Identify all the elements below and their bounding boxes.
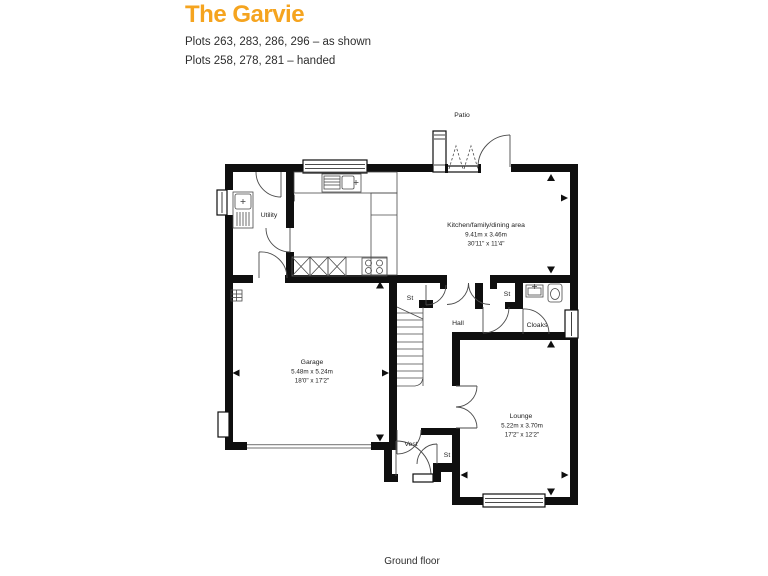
lounge-label: Lounge bbox=[510, 413, 533, 420]
wall-pier bbox=[433, 131, 446, 172]
base-units bbox=[292, 257, 387, 276]
utility-label: Utility bbox=[261, 212, 278, 219]
garage-vent bbox=[218, 412, 229, 437]
kitchen-label: Kitchen/family/dining area bbox=[447, 222, 525, 229]
lounge-dims-metric: 5.22m x 3.70m bbox=[501, 423, 543, 430]
store-top-left-label: St bbox=[407, 295, 414, 302]
kitchen-fittings bbox=[292, 172, 397, 276]
garage-dims-imperial: 18'0" x 17'2" bbox=[295, 378, 330, 385]
ground-floor-label: Ground floor bbox=[312, 556, 512, 567]
utility-sink-icon bbox=[233, 192, 253, 228]
floorplan-page: The Garvie Plots 263, 283, 286, 296 – as… bbox=[0, 0, 768, 576]
kitchen-counter bbox=[294, 172, 397, 193]
patio-doors bbox=[433, 131, 510, 173]
garage-door bbox=[247, 445, 371, 448]
hob-icon bbox=[362, 258, 387, 275]
lounge-dims-imperial: 17'2" x 12'2" bbox=[505, 432, 540, 439]
vestibule-label: Vest bbox=[404, 441, 417, 448]
basin-icon bbox=[526, 284, 543, 297]
cloaks-label: Cloaks bbox=[527, 322, 548, 329]
utility-window bbox=[217, 190, 227, 215]
kitchen-dims-imperial: 30'11" x 11'4" bbox=[467, 241, 504, 248]
tall-unit bbox=[371, 193, 397, 275]
store-top-right-label: St bbox=[504, 291, 511, 298]
kitchen-window bbox=[303, 160, 367, 173]
garage-label: Garage bbox=[301, 359, 324, 366]
hall-label: Hall bbox=[452, 320, 464, 327]
floorplan-drawing: Patio Kitchen/family/dining area 9.41m x… bbox=[0, 0, 768, 576]
toilet-icon bbox=[548, 284, 562, 302]
store-bottom-label: St bbox=[444, 452, 451, 459]
kitchen-dims-metric: 9.41m x 3.46m bbox=[465, 232, 507, 239]
front-door-sill bbox=[413, 474, 433, 482]
garage-dims-metric: 5.48m x 5.24m bbox=[291, 369, 333, 376]
kitchen-sink-icon bbox=[322, 174, 361, 192]
patio-label: Patio bbox=[454, 112, 470, 119]
lounge-window bbox=[483, 494, 545, 507]
cloaks-fittings bbox=[526, 284, 562, 302]
cloaks-window bbox=[565, 310, 578, 338]
staircase bbox=[397, 307, 423, 386]
